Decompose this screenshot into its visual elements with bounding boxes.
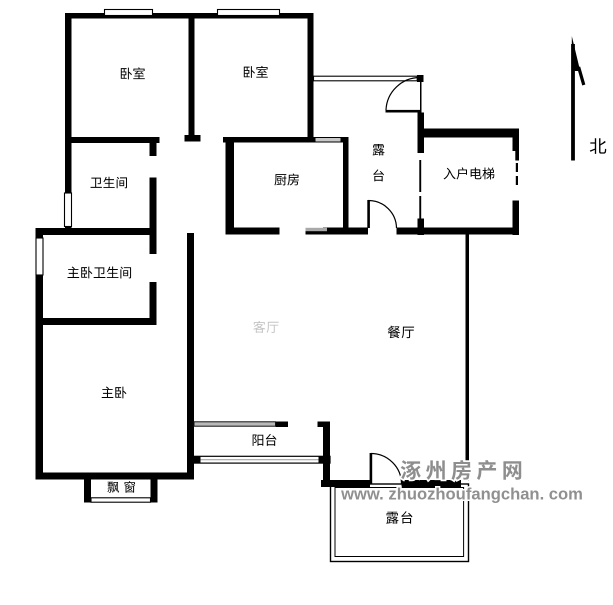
svg-text:www. zhuozhoufangchan. com: www. zhuozhoufangchan. com — [340, 485, 583, 504]
